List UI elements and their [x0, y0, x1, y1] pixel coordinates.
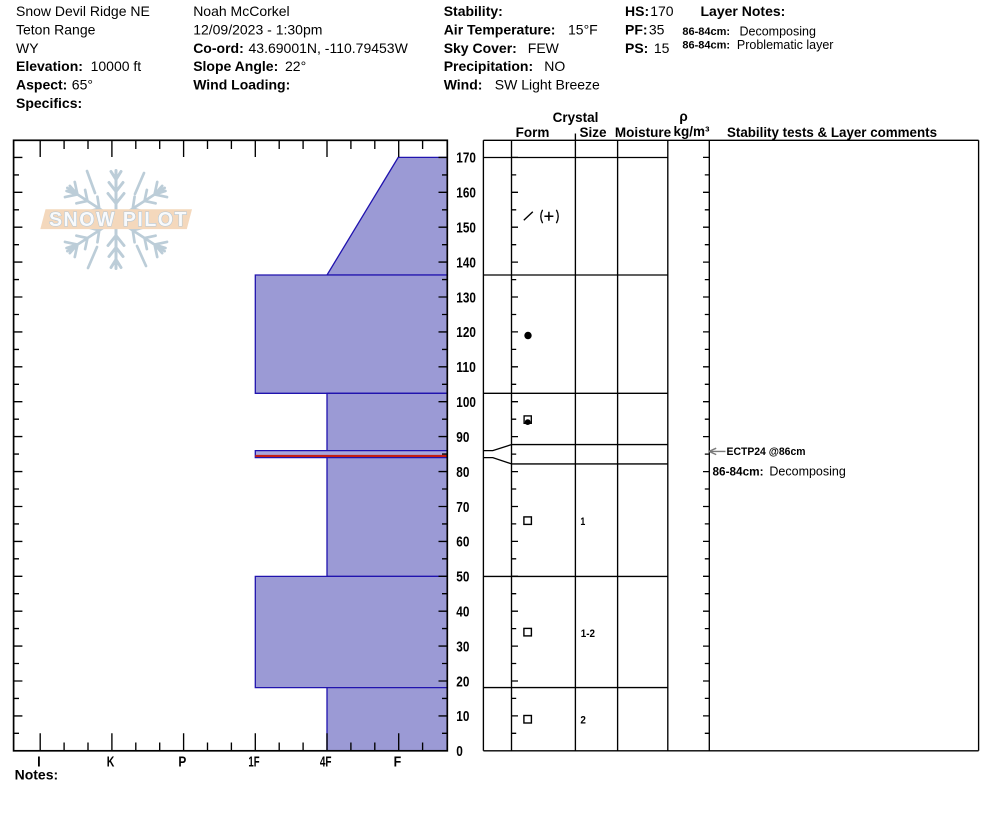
svg-text:WY: WY: [16, 40, 39, 56]
svg-text:ECTP24 @86cm: ECTP24 @86cm: [727, 446, 806, 458]
svg-text:Precipitation:: Precipitation:: [444, 58, 533, 74]
svg-text:150: 150: [456, 221, 476, 237]
svg-text:86-84cm:: 86-84cm:: [682, 40, 730, 52]
svg-text:Wind:: Wind:: [444, 77, 483, 93]
svg-text:Moisture: Moisture: [615, 125, 672, 140]
svg-text:170: 170: [456, 151, 476, 167]
svg-text:70: 70: [456, 500, 469, 516]
svg-text:100: 100: [456, 395, 476, 411]
svg-text:SW Light Breeze: SW Light Breeze: [495, 77, 600, 93]
svg-text:Decomposing: Decomposing: [769, 465, 845, 479]
svg-text:Air Temperature:: Air Temperature:: [444, 21, 556, 37]
svg-text:Elevation:: Elevation:: [16, 58, 83, 74]
svg-text:40: 40: [456, 605, 469, 621]
svg-text:Specifics:: Specifics:: [16, 95, 82, 111]
svg-text:Slope Angle:: Slope Angle:: [193, 58, 278, 74]
svg-text:35: 35: [649, 21, 665, 37]
svg-text:Decomposing: Decomposing: [740, 24, 816, 38]
svg-text:Teton Range: Teton Range: [16, 21, 96, 37]
svg-text:20: 20: [456, 674, 469, 690]
svg-text:22°: 22°: [285, 58, 306, 74]
svg-text:30: 30: [456, 639, 469, 655]
svg-text:160: 160: [456, 186, 476, 202]
svg-text:1F: 1F: [248, 754, 259, 770]
svg-text:PF:: PF:: [625, 21, 648, 37]
svg-text:Notes:: Notes:: [15, 767, 59, 783]
svg-text:SNOW PILOT: SNOW PILOT: [49, 209, 188, 231]
svg-text:FEW: FEW: [528, 40, 560, 56]
svg-text:15: 15: [654, 40, 670, 56]
svg-text:Size: Size: [579, 125, 607, 140]
svg-text:F: F: [394, 754, 402, 770]
svg-text:Sky Cover:: Sky Cover:: [444, 40, 517, 56]
svg-text:65°: 65°: [72, 77, 93, 93]
svg-text:ρ: ρ: [679, 109, 687, 124]
svg-text:110: 110: [456, 360, 476, 376]
svg-text:4F: 4F: [320, 754, 332, 770]
svg-text:K: K: [107, 754, 115, 770]
svg-text:43.69001N, -110.79453W: 43.69001N, -110.79453W: [249, 40, 409, 56]
svg-text:60: 60: [456, 535, 469, 551]
svg-text:86-84cm:: 86-84cm:: [713, 465, 764, 479]
svg-text:Wind Loading:: Wind Loading:: [193, 77, 290, 93]
svg-text:Co-ord:: Co-ord:: [193, 40, 244, 56]
svg-text:Stability tests & Layer commen: Stability tests & Layer comments: [727, 125, 937, 140]
svg-text:Problematic layer: Problematic layer: [737, 38, 834, 52]
svg-text:15°F: 15°F: [568, 21, 598, 37]
svg-text:Snow Devil Ridge NE: Snow Devil Ridge NE: [16, 3, 150, 19]
svg-text:170: 170: [650, 3, 674, 19]
svg-text:0: 0: [456, 744, 463, 760]
svg-text:1-2: 1-2: [581, 628, 595, 640]
svg-text:10000 ft: 10000 ft: [91, 58, 142, 74]
svg-text:90: 90: [456, 430, 469, 446]
svg-text:10: 10: [456, 709, 469, 725]
svg-text:12/09/2023 - 1:30pm: 12/09/2023 - 1:30pm: [193, 21, 322, 37]
svg-text:Aspect:: Aspect:: [16, 77, 67, 93]
svg-text:50: 50: [456, 570, 469, 586]
svg-text:Stability:: Stability:: [444, 3, 503, 19]
svg-text:86-84cm:: 86-84cm:: [682, 26, 730, 38]
svg-text:PS:: PS:: [625, 40, 648, 56]
svg-text:120: 120: [456, 325, 476, 341]
svg-text:Crystal: Crystal: [553, 110, 599, 125]
svg-text:Form: Form: [516, 125, 550, 140]
svg-text:P: P: [178, 754, 186, 770]
svg-text:1: 1: [580, 516, 585, 528]
svg-text:80: 80: [456, 465, 469, 481]
svg-text:NO: NO: [544, 58, 565, 74]
svg-text:140: 140: [456, 255, 476, 271]
svg-text:kg/m³: kg/m³: [673, 124, 710, 139]
svg-text:HS:: HS:: [625, 3, 649, 19]
svg-text:Noah McCorkel: Noah McCorkel: [193, 3, 289, 19]
svg-text:2: 2: [580, 715, 586, 727]
svg-text:Layer Notes:: Layer Notes:: [701, 3, 786, 19]
svg-text:130: 130: [456, 290, 476, 306]
